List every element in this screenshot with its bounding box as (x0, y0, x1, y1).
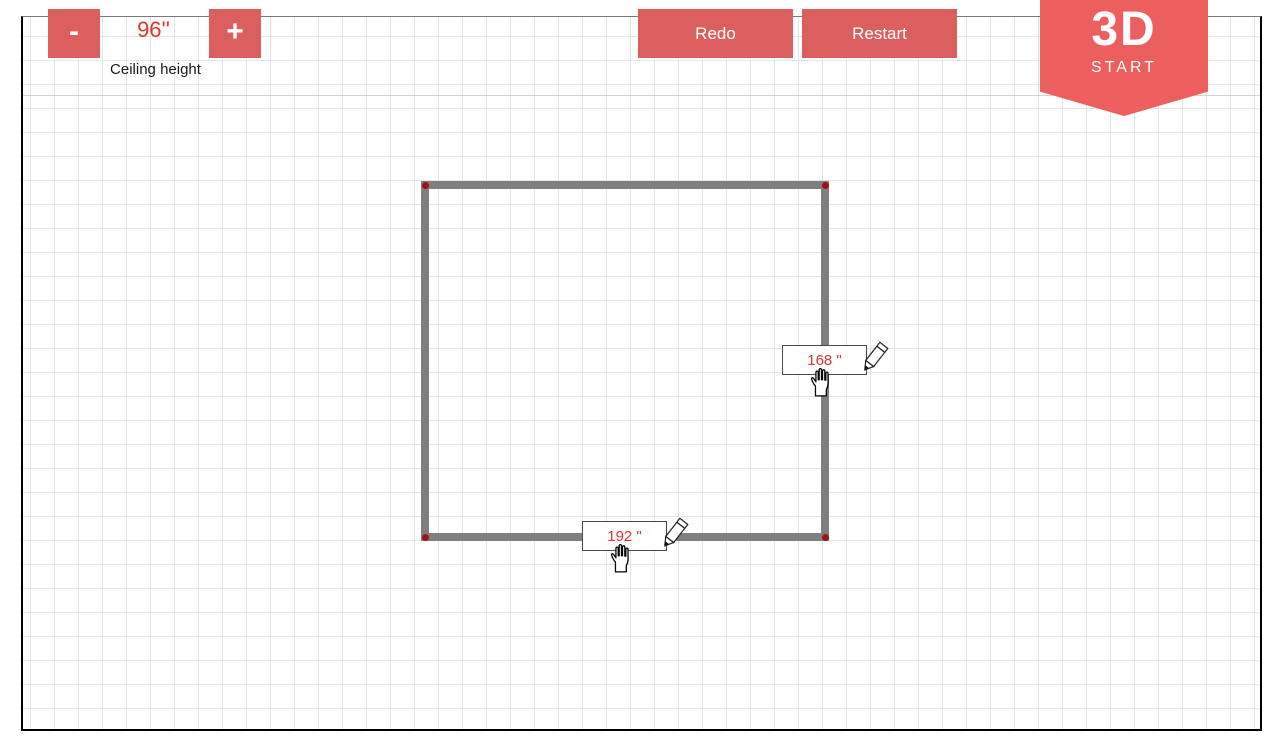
corner-handle-bottom-left[interactable] (422, 534, 429, 541)
corner-handle-top-left[interactable] (422, 182, 429, 189)
start-3d-badge-subtitle: START (1091, 59, 1157, 77)
room-wall-outline[interactable] (421, 181, 829, 541)
ceiling-height-decrease-button[interactable]: - (48, 9, 100, 58)
start-3d-badge[interactable]: 3D START (1040, 0, 1208, 116)
redo-button[interactable]: Redo (638, 9, 793, 58)
ceiling-height-value: 96'' (98, 17, 209, 43)
grab-hand-icon (606, 543, 636, 573)
ceiling-height-increase-button[interactable]: + (209, 9, 261, 58)
corner-handle-bottom-right[interactable] (822, 534, 829, 541)
ceiling-height-label: Ceiling height (48, 61, 263, 78)
right-wall-length-value: 168 " (807, 352, 842, 369)
start-3d-badge-title: 3D (1091, 4, 1156, 57)
corner-handle-top-right[interactable] (822, 182, 829, 189)
restart-button[interactable]: Restart (802, 9, 957, 58)
grab-hand-icon (806, 367, 836, 397)
bottom-wall-length-value: 192 " (607, 528, 642, 545)
